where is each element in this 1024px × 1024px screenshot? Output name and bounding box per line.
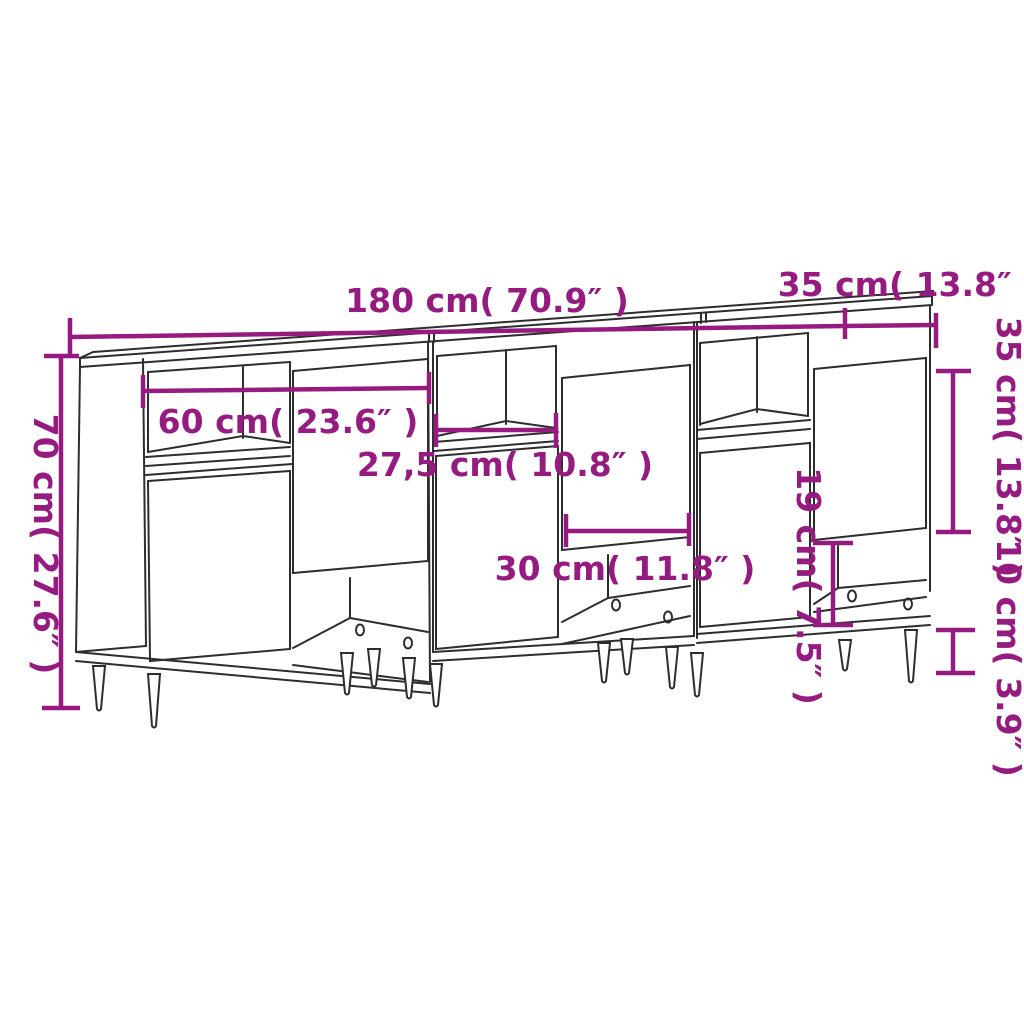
- dim-label-total-height: 70 cm( 27.6″ ): [26, 414, 65, 675]
- leg: [839, 640, 851, 671]
- dim-label-door-width: 30 cm( 11.8″ ): [495, 549, 756, 588]
- shelf-pin-hole: [848, 591, 856, 602]
- dim-line-depth: [845, 313, 936, 348]
- sideboard-middle-unit: [433, 322, 694, 661]
- leg: [691, 653, 703, 697]
- middle-niche: [437, 346, 556, 356]
- dim-label-unit-width: 60 cm( 23.6″ ): [158, 402, 419, 441]
- dim-line-body-height: [936, 371, 971, 532]
- dim-label-depth: 35 cm( 13.8″ ): [778, 265, 1024, 304]
- shelf-pin-hole: [612, 600, 620, 611]
- shelf-pin-hole: [404, 638, 412, 649]
- leg: [148, 674, 160, 728]
- dim-line-leg-height: [936, 630, 975, 673]
- dim-label-niche-width: 27,5 cm( 10.8″ ): [357, 445, 653, 484]
- dimension-labels: 180 cm( 70.9″ ) 35 cm( 13.8″ ) 70 cm( 27…: [26, 265, 1024, 777]
- leg: [341, 653, 353, 695]
- shelf-pin-hole: [356, 625, 364, 636]
- leg: [666, 647, 678, 689]
- diagram-canvas: 180 cm( 70.9″ ) 35 cm( 13.8″ ) 70 cm( 27…: [0, 0, 1024, 1024]
- dim-line-door-width: [566, 513, 689, 547]
- leg: [430, 664, 442, 707]
- dim-label-leg-height: 10 cm( 3.9″ ): [989, 539, 1024, 777]
- dim-label-compartment-height: 19 cm( 7.5″ ): [789, 467, 828, 705]
- leg: [621, 639, 633, 675]
- sideboard-left-unit: [76, 342, 430, 693]
- leg: [368, 649, 380, 687]
- dim-label-total-width: 180 cm( 70.9″ ): [345, 281, 629, 320]
- right-unit-top-door: [814, 358, 926, 540]
- right-niche: [700, 333, 808, 343]
- left-niche: [148, 362, 290, 372]
- left-unit-bottom-door: [148, 471, 290, 661]
- furniture-dimension-diagram: 180 cm( 70.9″ ) 35 cm( 13.8″ ) 70 cm( 27…: [0, 0, 1024, 1024]
- leg: [598, 643, 610, 683]
- leg: [905, 630, 917, 683]
- leg: [93, 666, 105, 711]
